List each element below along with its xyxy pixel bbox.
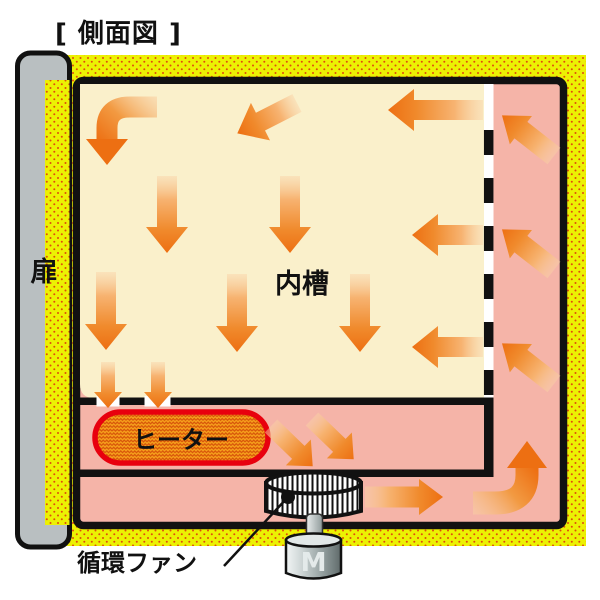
circulation-fan bbox=[266, 473, 361, 518]
heater: ヒーター bbox=[95, 412, 268, 463]
chamber-bottom-wall bbox=[80, 398, 494, 406]
door-label: 扉 bbox=[31, 257, 58, 288]
door-insulation-strip bbox=[45, 80, 70, 525]
heater-label: ヒーター bbox=[133, 426, 229, 454]
inner-chamber-label: 内槽 bbox=[275, 269, 329, 300]
heater-band-right-wall bbox=[484, 398, 494, 477]
oven-side-view-diagram: [ 側面図 ] ヒーター 内槽 M bbox=[0, 0, 600, 600]
circulation-fan-label: 循環ファン bbox=[77, 549, 197, 577]
diagram-title: [ 側面図 ] bbox=[55, 19, 182, 49]
fan-top bbox=[266, 473, 361, 494]
motor: M bbox=[286, 534, 341, 579]
motor-top bbox=[286, 534, 341, 547]
fan-callout-dot bbox=[281, 490, 295, 504]
motor-label: M bbox=[301, 548, 327, 578]
